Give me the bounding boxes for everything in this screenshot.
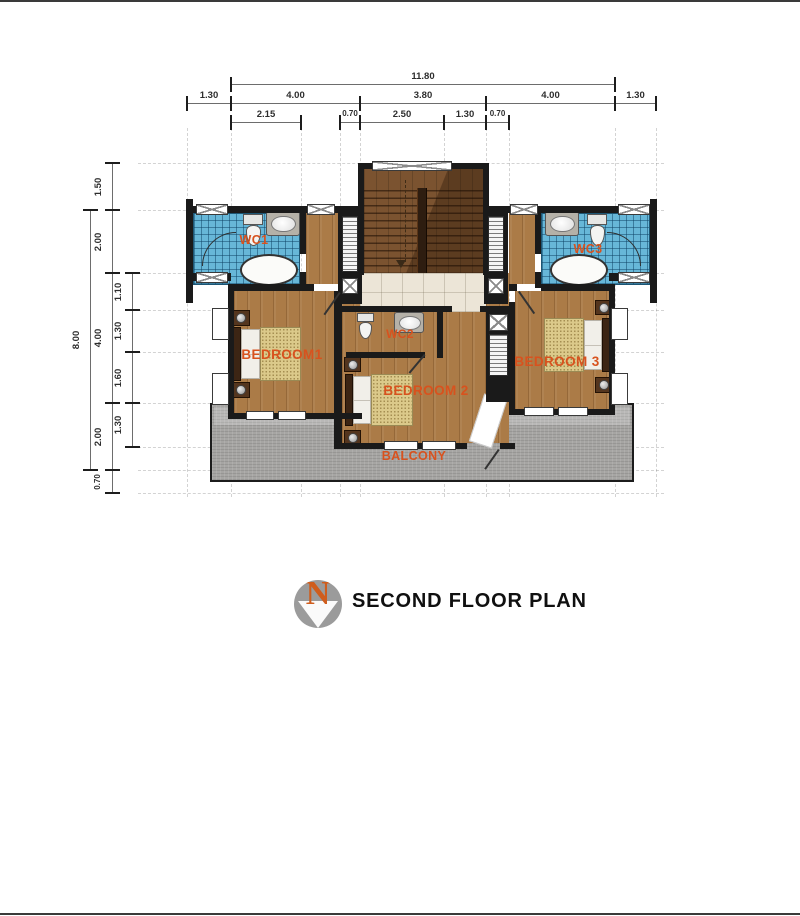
dim-v-label-6: 1.10 bbox=[113, 272, 125, 312]
dim-h-label-6: 2.15 bbox=[231, 109, 301, 120]
dim-v-label-2: 2.00 bbox=[93, 222, 105, 262]
dim-v-label-5: 0.70 bbox=[93, 462, 105, 502]
dim-v-line-5 bbox=[112, 470, 113, 493]
dim-v-tick-5a bbox=[105, 469, 120, 471]
dim-v-label-0: 8.00 bbox=[71, 320, 83, 360]
dim-v-line-1 bbox=[112, 163, 113, 210]
dim-h-line-3 bbox=[360, 103, 486, 104]
dim-v-tick-6a bbox=[125, 272, 140, 274]
dim-v-line-0 bbox=[90, 210, 91, 470]
dim-h-line-7 bbox=[340, 122, 360, 123]
dim-h-label-7: 0.70 bbox=[340, 109, 360, 120]
dim-h-label-3: 3.80 bbox=[360, 90, 486, 101]
room-label-bedroom2: BEDROOM 2 bbox=[363, 383, 489, 398]
dim-v-line-9 bbox=[132, 403, 133, 447]
compass-north-letter: N bbox=[294, 580, 342, 611]
dim-v-line-8 bbox=[132, 352, 133, 403]
room-label-wc3: WC3 bbox=[556, 242, 620, 256]
dim-v-tick-8a bbox=[125, 351, 140, 353]
dim-h-label-1: 1.30 bbox=[187, 90, 231, 101]
dim-v-tick-2a bbox=[105, 209, 120, 211]
dim-h-line-0 bbox=[231, 84, 615, 85]
dim-v-tick-0a bbox=[83, 209, 98, 211]
dim-v-tick-9b bbox=[125, 446, 140, 448]
dim-h-line-5 bbox=[615, 103, 656, 104]
dim-v-label-3: 4.00 bbox=[93, 318, 105, 358]
dim-h-line-6 bbox=[231, 122, 301, 123]
room-label-wc1: WC1 bbox=[222, 233, 286, 247]
dim-v-line-7 bbox=[132, 310, 133, 352]
north-compass: N bbox=[294, 580, 342, 628]
dim-v-label-9: 1.30 bbox=[113, 405, 125, 445]
dim-v-line-6 bbox=[132, 273, 133, 310]
dim-v-line-2 bbox=[112, 210, 113, 273]
floor-plan: 11.801.304.003.804.001.302.150.702.501.3… bbox=[0, 0, 800, 916]
dim-h-line-9 bbox=[444, 122, 486, 123]
dim-h-line-8 bbox=[360, 122, 444, 123]
dim-h-line-10 bbox=[486, 122, 509, 123]
dim-v-tick-9a bbox=[125, 402, 140, 404]
room-label-bedroom1: BEDROOM1 bbox=[230, 347, 334, 362]
dim-h-label-8: 2.50 bbox=[360, 109, 444, 120]
dim-v-tick-1a bbox=[105, 162, 120, 164]
dim-h-label-9: 1.30 bbox=[444, 109, 486, 120]
plan-title: SECOND FLOOR PLAN bbox=[352, 590, 587, 613]
dim-v-label-8: 1.60 bbox=[113, 358, 125, 398]
dim-v-label-4: 2.00 bbox=[93, 417, 105, 457]
dim-h-label-2: 4.00 bbox=[231, 90, 360, 101]
dim-v-label-7: 1.30 bbox=[113, 311, 125, 351]
dim-h-label-5: 1.30 bbox=[615, 90, 656, 101]
dim-v-tick-7a bbox=[125, 309, 140, 311]
room-label-bedroom3: BEDROOM 3 bbox=[495, 354, 619, 369]
dim-h-line-2 bbox=[231, 103, 360, 104]
dim-h-label-10: 0.70 bbox=[486, 109, 509, 120]
floor-plan-page: { "title_block": { "title": "SECOND FLOO… bbox=[0, 0, 800, 916]
dim-h-line-1 bbox=[187, 103, 231, 104]
dim-v-tick-5b bbox=[105, 492, 120, 494]
dim-v-label-1: 1.50 bbox=[93, 167, 105, 207]
room-label-wc2: WC2 bbox=[368, 327, 432, 341]
room-label-balcony: BALCONY bbox=[362, 449, 466, 463]
dim-h-label-4: 4.00 bbox=[486, 90, 615, 101]
dim-h-line-4 bbox=[486, 103, 615, 104]
dim-h-label-0: 11.80 bbox=[231, 71, 615, 82]
